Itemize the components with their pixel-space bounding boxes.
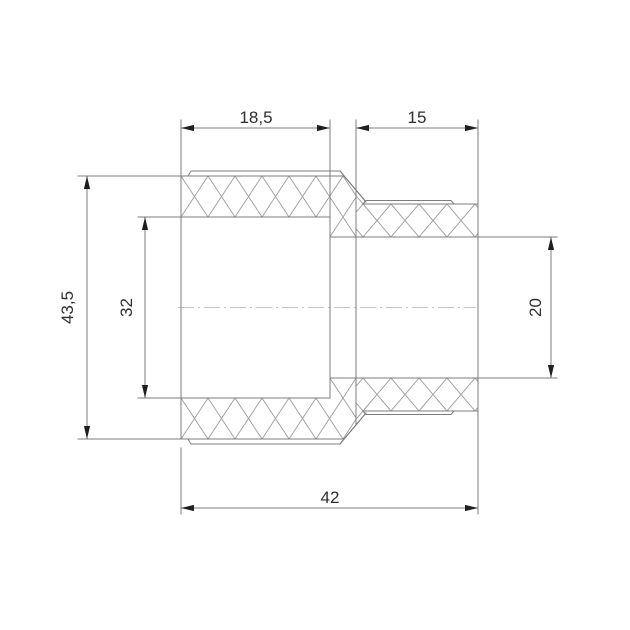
arrow-15-right (465, 125, 478, 131)
dim-label-right-socket-depth: 15 (408, 108, 427, 127)
arrow-43-5-top (84, 176, 90, 189)
dim-label-overall-length: 42 (321, 488, 340, 507)
dim-label-right-bore: 20 (526, 298, 545, 317)
arrow-32-bottom (142, 385, 148, 398)
arrow-42-left (181, 505, 194, 511)
dim-label-left-bore: 32 (117, 298, 136, 317)
dim-label-left-socket-depth: 18,5 (239, 108, 272, 127)
arrow-18-5-right (317, 125, 330, 131)
lower-wall-right-section (356, 378, 478, 425)
lower-left-rim (188, 439, 344, 444)
arrow-32-top (142, 217, 148, 230)
dim-label-outer-diameter: 43,5 (58, 291, 77, 324)
upper-right-rim (363, 201, 454, 205)
arrow-15-left (356, 125, 369, 131)
technical-drawing-canvas: 18,5 15 43,5 32 20 42 (0, 0, 630, 630)
arrow-18-5-left (181, 125, 194, 131)
arrow-20-bottom (548, 365, 554, 378)
arrow-42-right (465, 505, 478, 511)
upper-wall-right-section (356, 190, 478, 237)
arrow-20-top (548, 237, 554, 250)
arrow-43-5-bottom (84, 426, 90, 439)
upper-left-rim (188, 171, 344, 176)
lower-right-rim (363, 411, 454, 415)
